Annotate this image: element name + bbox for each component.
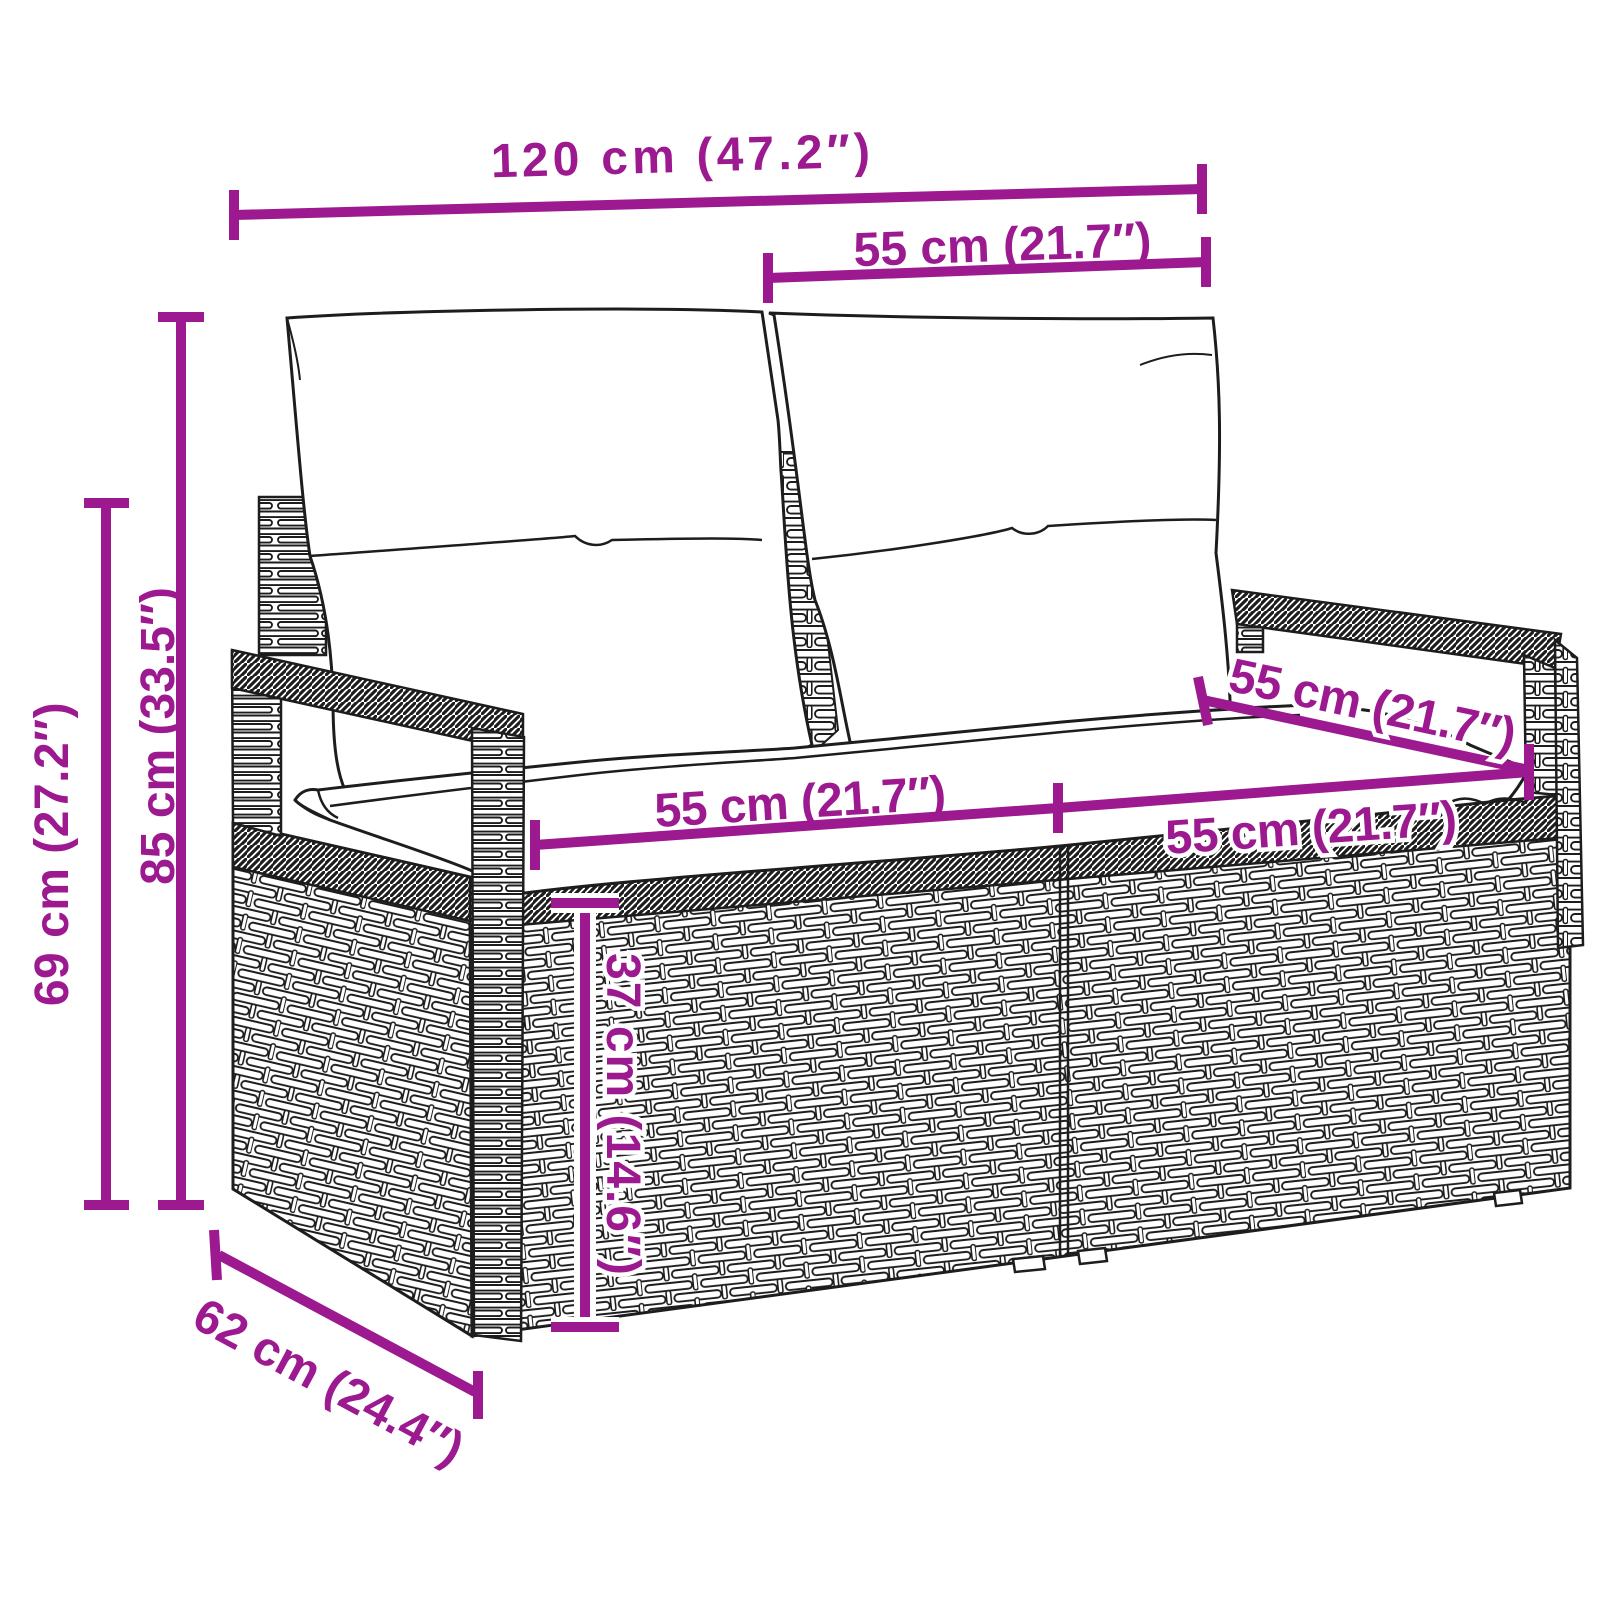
- svg-text:120 cm (47.2″): 120 cm (47.2″): [490, 125, 875, 189]
- svg-text:85 cm (33.5″): 85 cm (33.5″): [132, 587, 185, 885]
- svg-text:55 cm (21.7″): 55 cm (21.7″): [853, 214, 1152, 277]
- svg-text:37 cm (14.6″): 37 cm (14.6″): [596, 953, 649, 1277]
- svg-text:69 cm (27.2″): 69 cm (27.2″): [26, 702, 79, 1006]
